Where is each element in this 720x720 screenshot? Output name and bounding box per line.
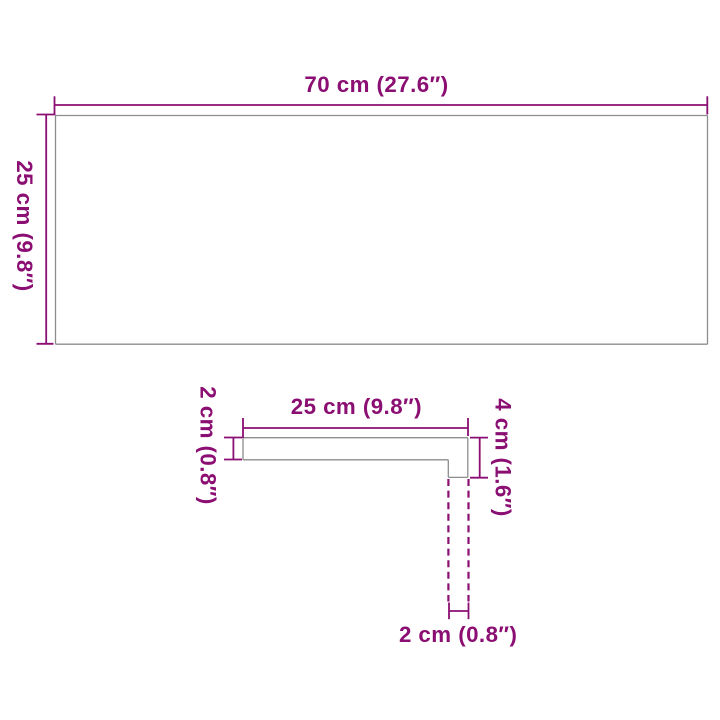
svg-text:25 cm (9.8″): 25 cm (9.8″) [291,394,422,419]
svg-text:70 cm (27.6″): 70 cm (27.6″) [304,72,448,97]
svg-text:25 cm (9.8″): 25 cm (9.8″) [12,160,37,291]
svg-text:4 cm (1.6″): 4 cm (1.6″) [491,398,516,517]
svg-text:2 cm (0.8″): 2 cm (0.8″) [399,622,518,647]
svg-text:2 cm (0.8″): 2 cm (0.8″) [196,386,221,505]
